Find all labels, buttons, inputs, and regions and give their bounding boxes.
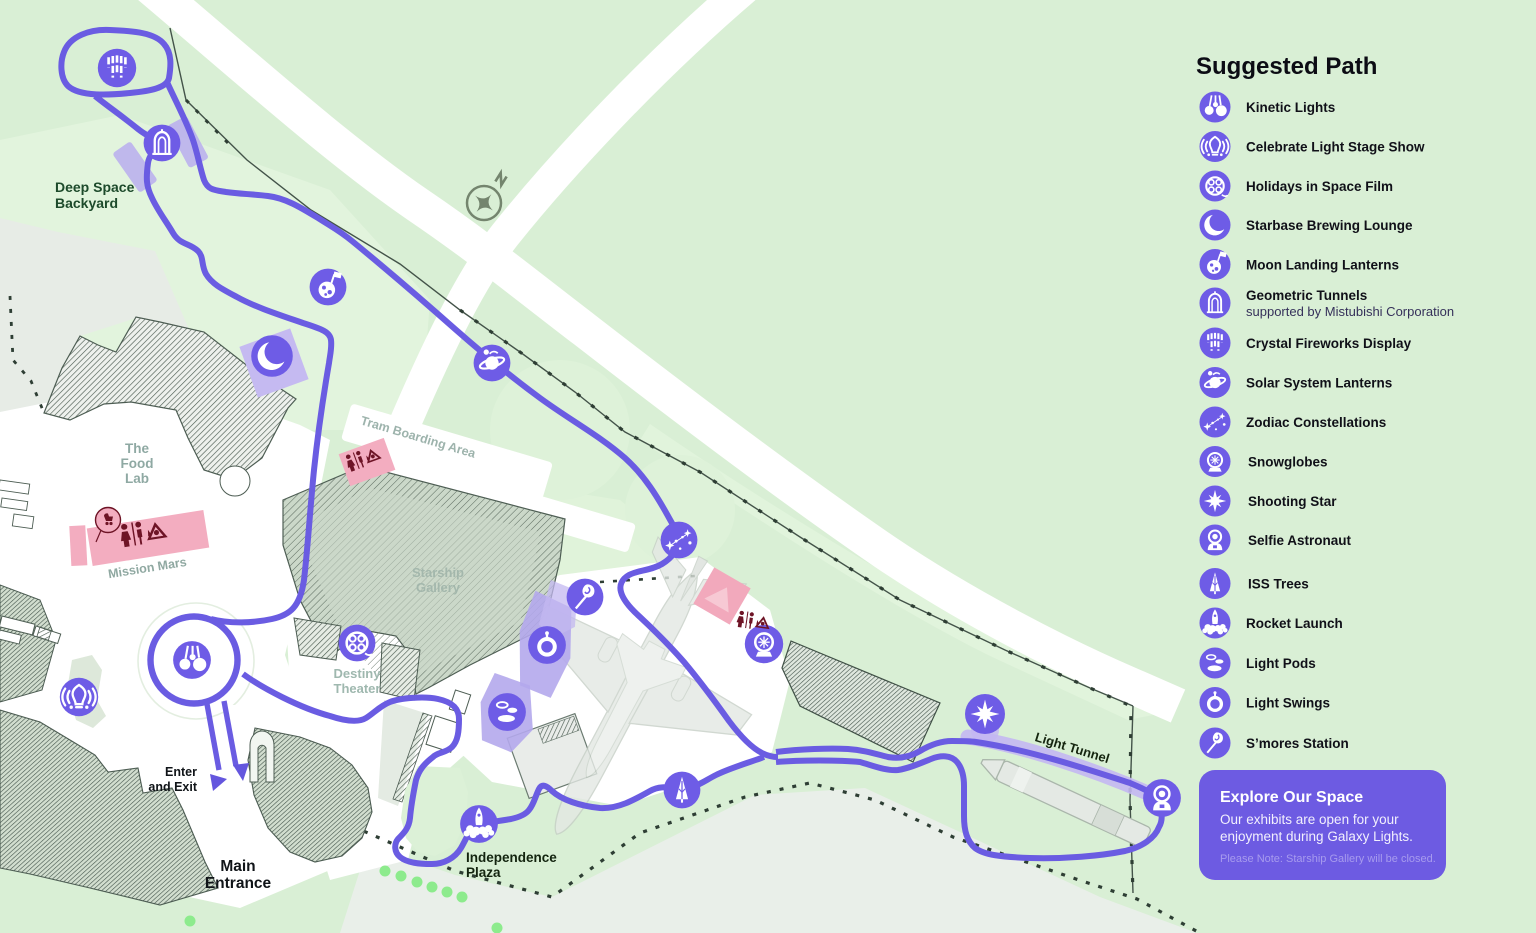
svg-text:Food: Food [121, 456, 154, 471]
svg-text:Light Pods: Light Pods [1246, 656, 1316, 671]
svg-text:Destiny: Destiny [334, 666, 382, 681]
svg-text:enjoyment during Galaxy Lights: enjoyment during Galaxy Lights. [1220, 829, 1413, 844]
svg-text:Enter: Enter [165, 765, 197, 779]
svg-text:Solar System Lanterns: Solar System Lanterns [1246, 376, 1392, 391]
svg-text:supported by Mistubishi Corpor: supported by Mistubishi Corporation [1246, 304, 1454, 319]
svg-text:Starship: Starship [412, 565, 464, 580]
svg-text:Suggested Path: Suggested Path [1196, 53, 1377, 80]
svg-text:Entrance: Entrance [205, 875, 272, 892]
svg-text:Celebrate Light Stage Show: Celebrate Light Stage Show [1246, 140, 1425, 155]
svg-text:and Exit: and Exit [148, 780, 197, 794]
svg-text:Shooting Star: Shooting Star [1248, 494, 1337, 509]
svg-text:Starbase Brewing Lounge: Starbase Brewing Lounge [1246, 218, 1413, 233]
svg-text:Theater: Theater [334, 681, 381, 696]
svg-text:Gallery: Gallery [416, 580, 461, 595]
svg-text:Geometric Tunnels: Geometric Tunnels [1246, 288, 1367, 303]
svg-text:Moon Landing Lanterns: Moon Landing Lanterns [1246, 258, 1399, 273]
svg-text:Snowglobes: Snowglobes [1248, 455, 1328, 470]
svg-text:Deep Space: Deep Space [55, 179, 135, 195]
svg-text:Lab: Lab [125, 471, 149, 486]
svg-text:Backyard: Backyard [55, 195, 118, 211]
svg-text:The: The [125, 441, 149, 456]
svg-text:Zodiac Constellations: Zodiac Constellations [1246, 415, 1386, 430]
svg-text:Holidays in Space Film: Holidays in Space Film [1246, 179, 1393, 194]
svg-text:Crystal Fireworks Display: Crystal Fireworks Display [1246, 336, 1412, 351]
svg-text:Explore Our Space: Explore Our Space [1220, 789, 1363, 806]
svg-text:Light Swings: Light Swings [1246, 696, 1330, 711]
svg-text:ISS Trees: ISS Trees [1248, 577, 1309, 592]
svg-text:Main: Main [220, 858, 255, 875]
svg-text:Plaza: Plaza [466, 865, 501, 880]
svg-text:Rocket Launch: Rocket Launch [1246, 616, 1343, 631]
svg-text:Please Note: Starship Gallery: Please Note: Starship Gallery will be cl… [1220, 853, 1436, 865]
svg-text:S’mores Station: S’mores Station [1246, 736, 1349, 751]
svg-text:Our exhibits are open for your: Our exhibits are open for your [1220, 812, 1399, 827]
svg-text:Independence: Independence [466, 850, 557, 865]
svg-text:Selfie Astronaut: Selfie Astronaut [1248, 533, 1352, 548]
svg-text:Kinetic Lights: Kinetic Lights [1246, 100, 1335, 115]
